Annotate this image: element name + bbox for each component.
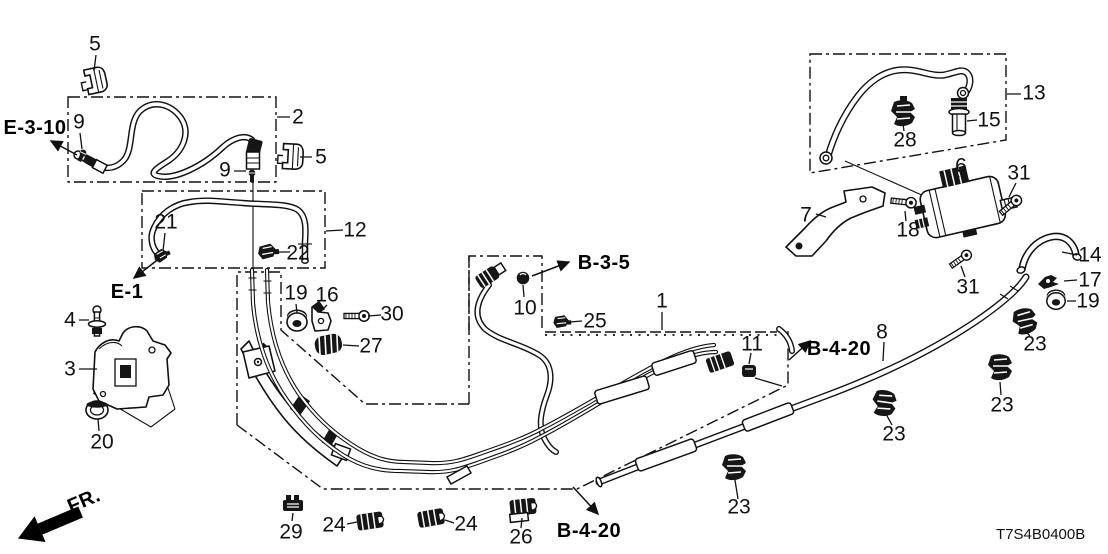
ref-label-b-4-20: B-4-20 [557, 521, 621, 541]
clamp-23-2 [988, 354, 1012, 380]
callout-28: 28 [893, 130, 916, 151]
bolt-4 [89, 306, 106, 336]
joint-10 [517, 272, 530, 285]
callout-29: 29 [279, 522, 302, 543]
callout-4: 4 [64, 310, 76, 331]
callout-30: 30 [380, 304, 403, 325]
callout-5: 5 [89, 34, 101, 55]
clamp-28 [891, 96, 915, 126]
clip-25 [553, 315, 571, 328]
purge-valve-15 [949, 98, 969, 136]
callout-11: 11 [741, 334, 763, 355]
damper-11 [742, 365, 756, 377]
parts-diagram-page: T7S4B0400B 52959122122432019163027102511… [0, 0, 1108, 554]
callout-23: 23 [882, 424, 905, 445]
clamp-23-3 [870, 389, 897, 418]
grommet-20 [86, 401, 108, 419]
grommet-19-right [1047, 290, 1065, 310]
callout-3: 3 [64, 359, 76, 380]
callout-12: 12 [343, 220, 366, 241]
callout-5: 5 [315, 147, 327, 168]
callout-27: 27 [359, 336, 382, 357]
callout-23: 23 [1023, 334, 1046, 355]
clamp-29 [283, 495, 303, 511]
callout-14: 14 [1078, 245, 1101, 266]
callout-24: 24 [322, 515, 345, 536]
ref-label-b-4-20: B-4-20 [807, 339, 871, 359]
callout-9: 9 [219, 160, 231, 181]
callout-7: 7 [800, 205, 812, 226]
bolt-9b [249, 170, 256, 182]
callout-26: 26 [509, 527, 532, 548]
callout-16: 16 [315, 285, 338, 306]
callout-17: 17 [1078, 270, 1101, 291]
clamp-22 [257, 243, 279, 260]
hose-2 [74, 104, 263, 176]
clamp-17 [1038, 275, 1059, 289]
callout-6: 6 [955, 156, 967, 177]
callout-23: 23 [727, 497, 750, 518]
callout-15: 15 [977, 110, 1000, 131]
callout-1: 1 [656, 291, 668, 312]
callout-18: 18 [896, 220, 919, 241]
clamp-24b [417, 508, 446, 528]
leader-lines [79, 55, 1077, 528]
diagram-code: T7S4B0400B [996, 526, 1085, 543]
callout-9: 9 [73, 112, 85, 133]
callout-31: 31 [1007, 163, 1030, 184]
hose-14 [1016, 236, 1081, 274]
small-parts [76, 66, 1065, 531]
clamp-24a [356, 511, 385, 531]
ref-label-e-3-10: E-3-10 [3, 118, 66, 138]
callout-22: 22 [286, 243, 309, 264]
callout-31: 31 [956, 277, 979, 298]
bolt-30 [344, 311, 369, 321]
callout-2: 2 [292, 107, 304, 128]
dash-boundaries [68, 54, 1006, 489]
callout-19: 19 [284, 283, 307, 304]
callout-25: 25 [583, 311, 606, 332]
clamp-26 [508, 498, 538, 523]
ref-label-e-1: E-1 [111, 282, 144, 302]
clamp-5b [277, 143, 303, 169]
callout-21: 21 [154, 212, 177, 233]
callout-10: 10 [513, 298, 536, 319]
callout-20: 20 [90, 432, 113, 453]
ref-label-b-3-5: B-3-5 [578, 253, 631, 273]
clamp-23-4 [722, 454, 746, 480]
bracket-3 [93, 327, 171, 409]
callout-23: 23 [990, 395, 1013, 416]
callout-24: 24 [454, 514, 477, 535]
tube-cover-27 [313, 332, 343, 356]
callout-13: 13 [1022, 83, 1045, 104]
diagram-canvas [0, 0, 1108, 554]
callout-8: 8 [876, 322, 888, 343]
reference-arrows [51, 141, 810, 514]
bolt-18 [891, 195, 917, 208]
callout-19: 19 [1076, 291, 1099, 312]
